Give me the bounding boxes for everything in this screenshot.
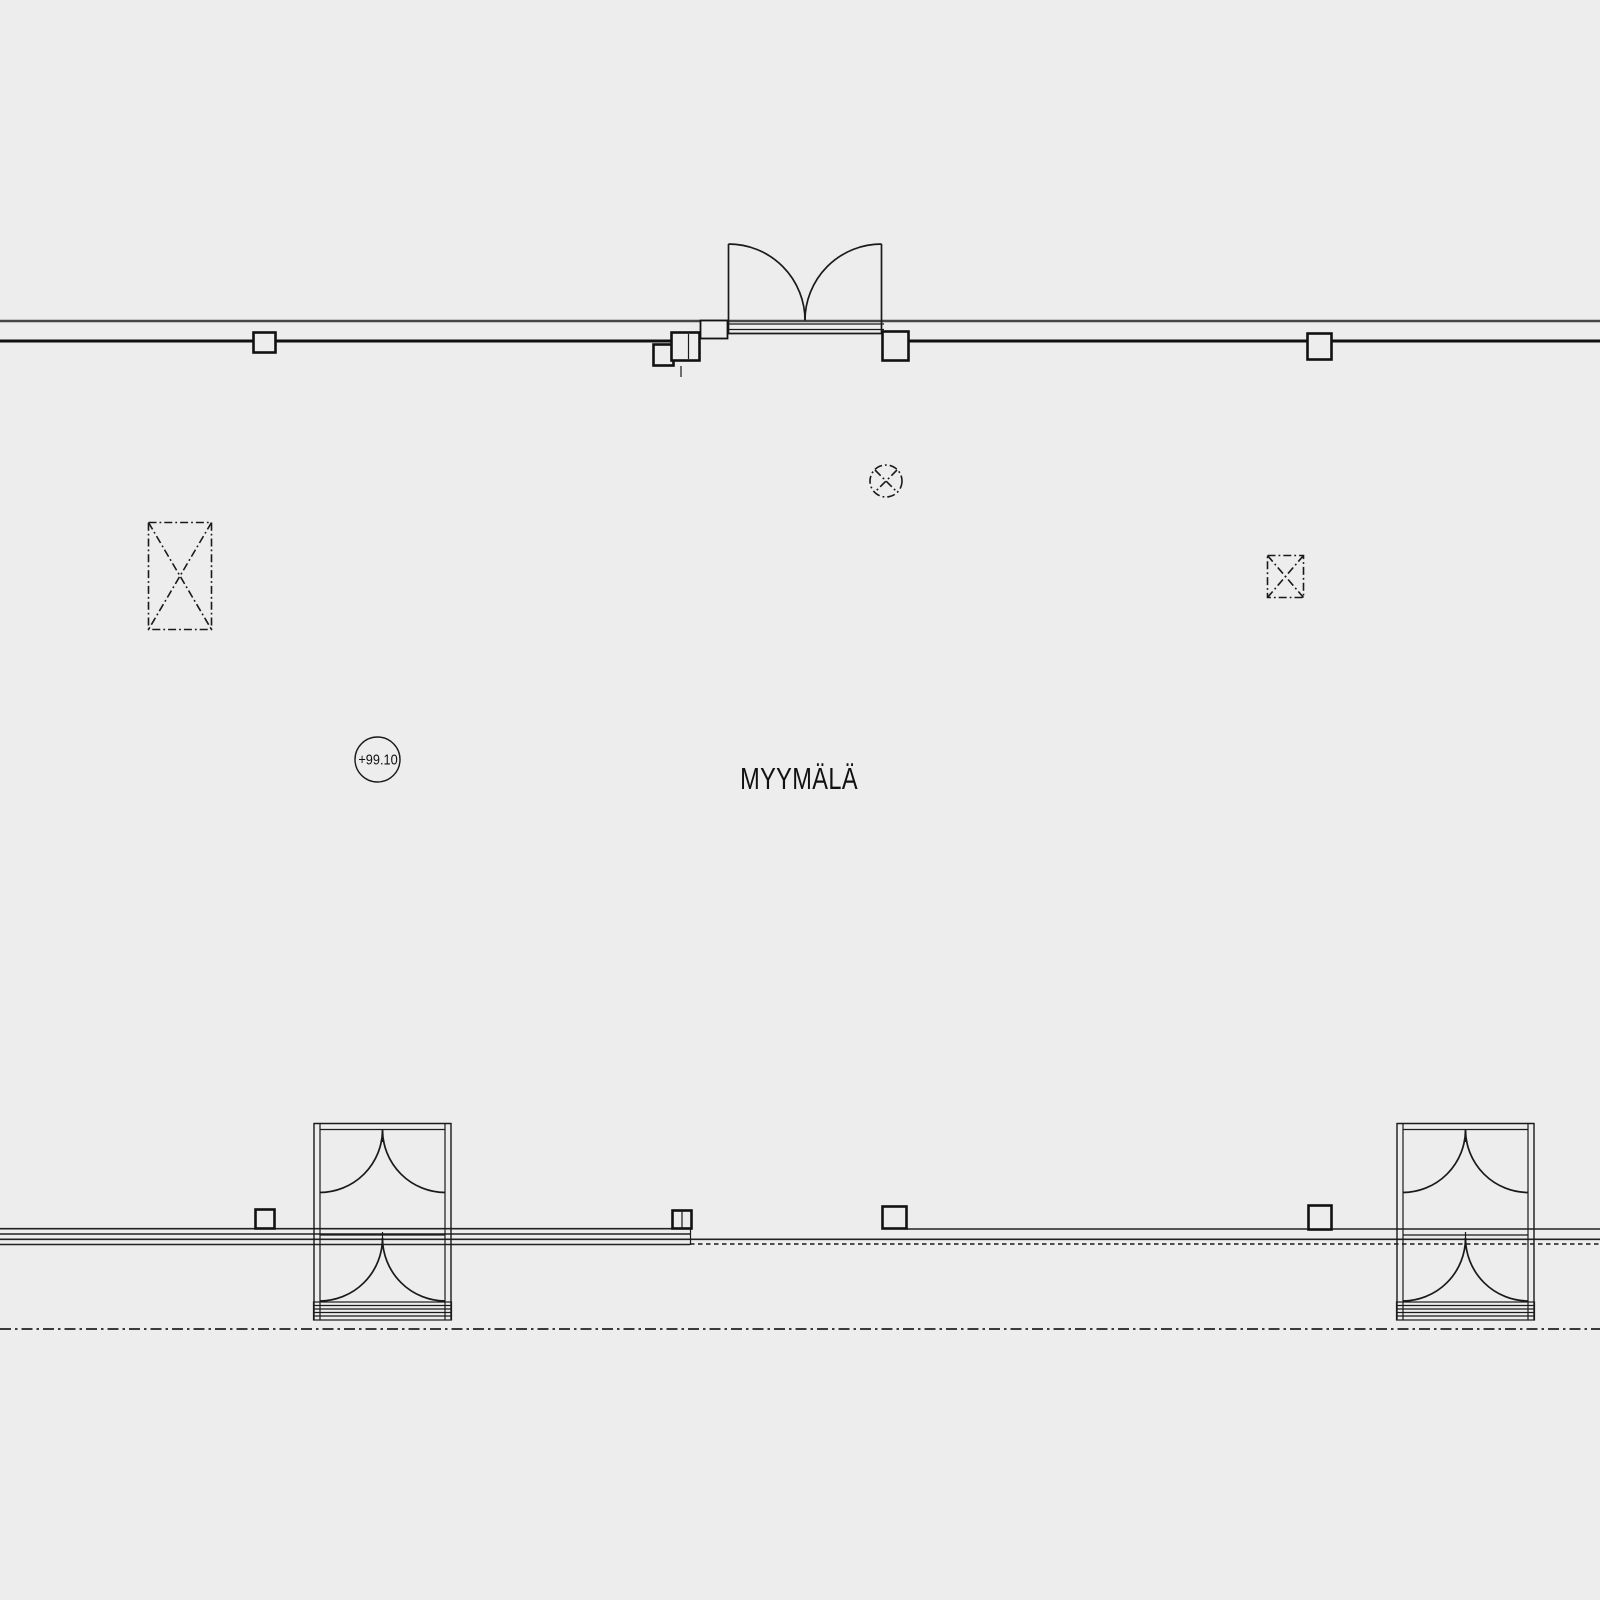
door-swing-arc-right <box>805 244 882 321</box>
level-marker: +99.10 <box>355 737 400 782</box>
structural-column <box>883 1207 907 1229</box>
inner-door-swing-arc-right <box>383 1130 446 1193</box>
opening-above-symbol-left <box>149 523 212 630</box>
structural-column-door-left <box>672 333 700 361</box>
structural-column <box>254 333 276 353</box>
round-opening-symbol-center <box>870 465 902 497</box>
top-wall <box>0 321 1600 341</box>
door-swing-arc-left <box>729 244 806 321</box>
threshold-hatch <box>1397 1302 1535 1320</box>
dashed-circle <box>870 465 902 497</box>
structural-column-door-right <box>883 332 909 361</box>
dashed-square-diagonal <box>1268 556 1304 598</box>
vestibule-right <box>1397 1123 1535 1320</box>
threshold-hatch-frame <box>314 1302 452 1320</box>
level-marker-value: +99.10 <box>358 750 398 767</box>
structural-column <box>1309 1206 1332 1230</box>
structural-column <box>1308 334 1332 360</box>
outer-door-swing-arc-right <box>383 1238 446 1301</box>
inner-door-swing-arc-right <box>1466 1130 1529 1193</box>
structural-column <box>256 1210 275 1229</box>
opening-above-symbol-right <box>1268 556 1304 598</box>
door-frame-block <box>701 321 728 339</box>
bottom-wall-columns <box>256 1206 1332 1230</box>
inner-door-swing-arc-left <box>320 1130 383 1193</box>
vestibule-left <box>314 1123 452 1320</box>
threshold-hatch <box>314 1302 452 1320</box>
entrance-double-door <box>729 244 882 333</box>
outer-door-swing-arc-right <box>1466 1238 1529 1301</box>
bottom-storefront-wall <box>0 1228 1600 1245</box>
floor-plan-drawing: +99.10 MYYMÄLÄ <box>0 0 1600 1600</box>
threshold-hatch-lines <box>1397 1306 1535 1317</box>
threshold-hatch-lines <box>314 1306 452 1317</box>
threshold-hatch-frame <box>1397 1302 1535 1320</box>
outer-door-swing-arc-left <box>320 1238 383 1301</box>
inner-door-swing-arc-left <box>1403 1130 1466 1193</box>
room-label: MYYMÄLÄ <box>740 761 858 796</box>
floor-plan-canvas: +99.10 MYYMÄLÄ <box>0 0 1600 1600</box>
outer-door-swing-arc-left <box>1403 1238 1466 1301</box>
